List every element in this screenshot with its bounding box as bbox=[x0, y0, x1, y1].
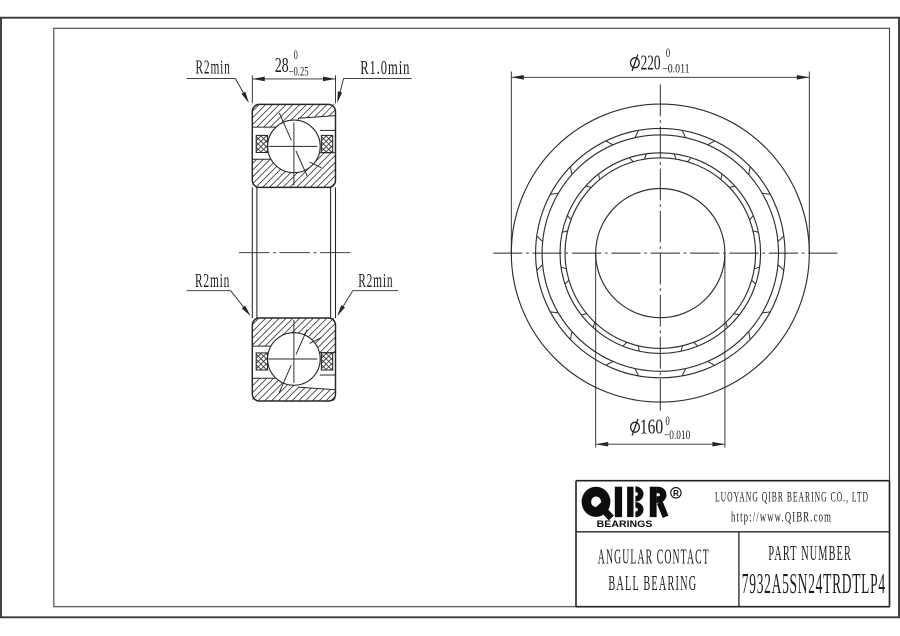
svg-text:BALL BEARING: BALL BEARING bbox=[608, 571, 697, 595]
svg-text:7932A5SN24TRDTLP4: 7932A5SN24TRDTLP4 bbox=[742, 569, 886, 600]
svg-text:LUOYANG QIBR BEARING CO., LTD: LUOYANG QIBR BEARING CO., LTD bbox=[715, 488, 869, 505]
svg-text:−0.011: −0.011 bbox=[662, 62, 689, 76]
svg-text:28: 28 bbox=[275, 53, 289, 77]
svg-text:0: 0 bbox=[666, 46, 670, 60]
svg-text:0: 0 bbox=[665, 414, 669, 428]
svg-text:BEARINGS: BEARINGS bbox=[597, 519, 653, 529]
svg-text:160: 160 bbox=[640, 414, 663, 438]
svg-text:−0.010: −0.010 bbox=[664, 428, 690, 442]
svg-text:R2min: R2min bbox=[195, 270, 230, 292]
svg-text:R: R bbox=[673, 489, 679, 498]
svg-text:ANGULAR CONTACT: ANGULAR CONTACT bbox=[598, 544, 710, 568]
svg-text:220: 220 bbox=[641, 50, 661, 74]
svg-text:0: 0 bbox=[294, 48, 298, 62]
svg-text:R2min: R2min bbox=[196, 57, 231, 79]
svg-text:R2min: R2min bbox=[358, 270, 393, 292]
svg-text:http://www.QIBR.com: http://www.QIBR.com bbox=[731, 509, 832, 526]
svg-text:−0.25: −0.25 bbox=[289, 64, 309, 78]
svg-text:PART NUMBER: PART NUMBER bbox=[768, 541, 852, 565]
svg-text:R1.0min: R1.0min bbox=[360, 57, 410, 79]
